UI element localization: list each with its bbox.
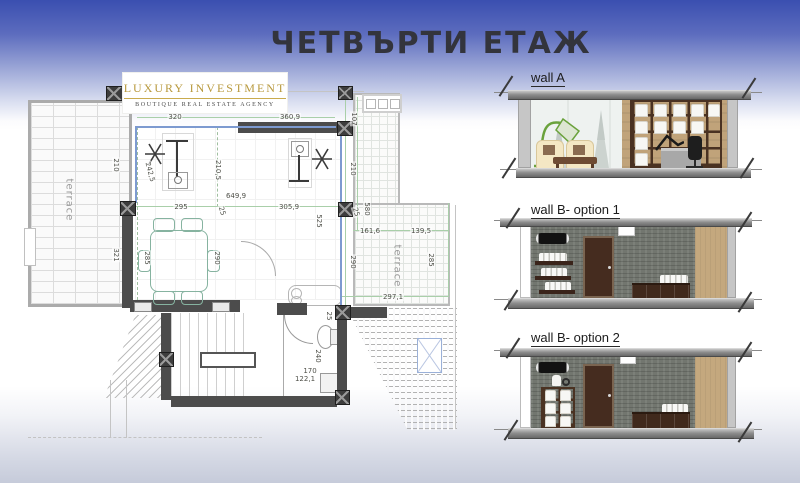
agency-logo: LUXURY INVESTMENT BOUTIQUE REAL ESTATE A… (122, 72, 288, 114)
dim-label: 285 (143, 250, 151, 265)
shelf-bottles (545, 282, 571, 290)
dim-label: 297,1 (382, 293, 404, 301)
shelf-books (635, 137, 648, 150)
cabinet-bottles (660, 275, 688, 283)
slab-bottom (508, 298, 754, 309)
dim-line (448, 203, 449, 297)
dim-label: 122,1 (294, 375, 316, 383)
skylight-cross (418, 339, 441, 372)
dim-line (137, 127, 138, 300)
roof-hatch-left (104, 315, 161, 398)
shelf-books (673, 104, 686, 117)
dim-label: 525 (315, 213, 323, 228)
glass-wall-top (135, 126, 336, 128)
dining-chair (153, 291, 175, 305)
dim-line (135, 206, 352, 207)
dim-label: 321 (112, 247, 120, 262)
cabinet-bottles (662, 404, 688, 412)
slab-top (500, 218, 752, 227)
window-pane (378, 99, 388, 109)
shelf-books (545, 403, 556, 414)
outline-line (455, 205, 456, 429)
shelf-books (560, 416, 571, 427)
slab-top (508, 90, 751, 100)
dim-label: 240 (314, 348, 322, 363)
wall-b1-right-pillar (727, 225, 736, 298)
outline-line (126, 380, 127, 438)
wall-shelf (539, 290, 575, 294)
door-handle (608, 394, 611, 397)
stair-handrail (200, 352, 256, 368)
column (120, 201, 136, 216)
shelf-books (635, 104, 648, 117)
wall-b2-right-pillar (727, 355, 736, 428)
dim-label: 290 (349, 254, 357, 269)
shelf-books (691, 121, 704, 134)
coffee-table (553, 157, 597, 164)
dining-chair (181, 218, 203, 232)
armchair-cushion (543, 145, 555, 155)
window-pane (366, 99, 376, 109)
wall-b1-label: wall B- option 1 (531, 202, 620, 219)
dim-label: 170 (302, 367, 317, 375)
window-pane (390, 99, 400, 109)
office-chair-back (688, 136, 702, 160)
dim-label: 360,9 (279, 113, 301, 121)
wall-bottom-main (171, 396, 337, 407)
terrace-left-gate (24, 228, 36, 266)
wall-a-left-pillar (518, 98, 531, 168)
desk-lamp-icon (652, 126, 684, 152)
wall-b1-left-pillar (520, 225, 531, 298)
wall-mid-vertical (122, 202, 133, 308)
terrace-right-label: terrace (392, 245, 403, 288)
shelf-books (560, 403, 571, 414)
wall-b1-wood-panel (695, 225, 727, 298)
column (106, 86, 123, 101)
shelf-books (691, 104, 704, 117)
wall-b2-label: wall B- option 2 (531, 330, 620, 347)
column (159, 352, 174, 367)
page-title: ЧЕТВЪРТИ ЕТАЖ (0, 26, 800, 61)
wall-bath-top (277, 303, 307, 315)
shelf-books (708, 104, 720, 117)
lamp-bulb (174, 176, 182, 184)
shelf-books (545, 390, 556, 401)
lamp-bulb (296, 145, 304, 153)
shelf-bottles (539, 253, 567, 261)
shelf-bottles (541, 268, 567, 276)
dining-chair (153, 218, 175, 232)
lamp-stem (298, 155, 300, 181)
column (335, 305, 351, 320)
dim-label: 107 (350, 111, 358, 126)
slab-bottom (508, 428, 754, 439)
wall-b2-wood-panel (695, 355, 727, 428)
door-handle (608, 266, 611, 269)
dim-label: 649,9 (225, 192, 247, 200)
projection-line (28, 437, 262, 438)
vent (618, 226, 635, 236)
slab-top (500, 348, 752, 357)
wall-a-label: wall A (531, 70, 565, 87)
dining-chair (181, 291, 203, 305)
shelf-books (635, 153, 648, 166)
ceiling-fan-icon (310, 147, 334, 171)
terrace-left (28, 100, 132, 307)
shelf-books (545, 416, 556, 427)
dim-label: 210,5 (214, 159, 222, 181)
agency-logo-name: LUXURY INVESTMENT (124, 81, 287, 99)
armchair-cushion (573, 145, 585, 155)
dim-label: 295 (173, 203, 188, 211)
dim-label: 285 (427, 252, 435, 267)
glass-wall-right (340, 130, 342, 305)
outline-line (110, 380, 111, 438)
dim-label: 161,6 (359, 227, 381, 235)
dim-label: 139,5 (410, 227, 432, 235)
wall-b2-left-pillar (520, 355, 531, 428)
dim-label: 25 (325, 311, 333, 322)
dim-label: 290 (213, 250, 221, 265)
window-sill (134, 302, 152, 312)
dining-table (150, 230, 208, 292)
dim-label: 210 (112, 157, 120, 172)
window-sill (212, 302, 230, 312)
section-tick (502, 158, 516, 179)
slab-bottom (516, 168, 751, 178)
column (338, 86, 353, 100)
decor-ring (562, 378, 570, 386)
tv-console (536, 233, 569, 244)
terrace-left-label: terrace (64, 179, 75, 222)
decor-jug (552, 375, 561, 386)
wall-bath-right (337, 308, 347, 400)
column (335, 390, 350, 405)
glass-wall-left (135, 126, 137, 203)
wall-shelf (535, 276, 571, 280)
tv-console (536, 362, 569, 373)
shelf-books (654, 104, 667, 117)
wall-a-right-pillar (727, 96, 738, 168)
agency-logo-tagline: BOUTIQUE REAL ESTATE AGENCY (123, 102, 287, 108)
bath-door-arc (284, 315, 313, 344)
dim-label: 580 (363, 201, 371, 216)
skylight (417, 338, 442, 373)
shelf-books (560, 390, 571, 401)
bath-partition (283, 313, 284, 397)
shelf-books (635, 121, 648, 134)
lamp-bar (289, 180, 309, 182)
wall-shelf (535, 261, 573, 265)
page: ЧЕТВЪРТИ ЕТАЖ terrace terrace (0, 0, 800, 483)
dim-label: 305,9 (278, 203, 300, 211)
dim-label: 210 (349, 161, 357, 176)
dim-label: 320 (167, 113, 182, 121)
